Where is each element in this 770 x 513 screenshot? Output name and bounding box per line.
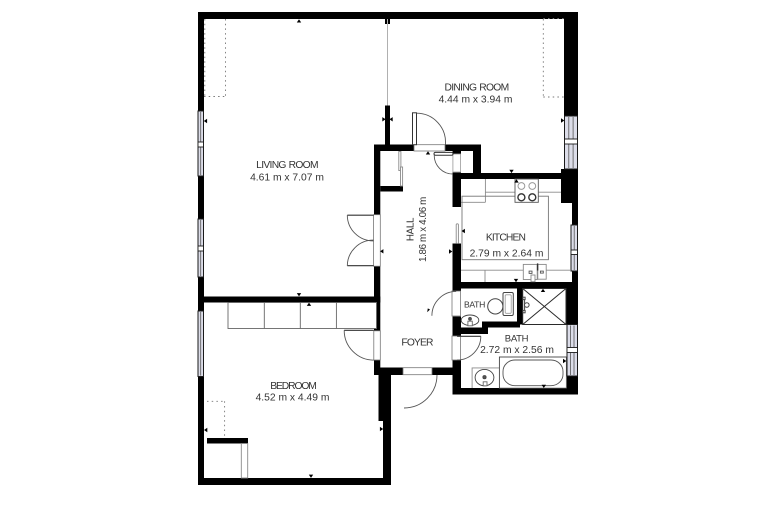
svg-text:4.52 m x 4.49 m: 4.52 m x 4.49 m	[256, 393, 330, 404]
svg-text:HALL: HALL	[405, 217, 416, 241]
svg-text:4.61 m x 7.07 m: 4.61 m x 7.07 m	[250, 172, 324, 183]
svg-text:1.86 m x 4.06 m: 1.86 m x 4.06 m	[418, 197, 429, 262]
svg-text:DINING ROOM: DINING ROOM	[445, 83, 509, 94]
svg-text:2.79 m x 2.64 m: 2.79 m x 2.64 m	[470, 249, 544, 260]
svg-text:LIVING ROOM: LIVING ROOM	[256, 160, 318, 171]
svg-text:BATH: BATH	[505, 334, 529, 345]
svg-text:BEDROOM: BEDROOM	[270, 381, 316, 392]
svg-text:BATH: BATH	[464, 299, 485, 309]
svg-text:2.72 m x 2.56 m: 2.72 m x 2.56 m	[480, 345, 554, 356]
svg-text:KITCHEN: KITCHEN	[486, 233, 526, 244]
svg-text:4.44 m x 3.94 m: 4.44 m x 3.94 m	[439, 95, 513, 106]
svg-text:FOYER: FOYER	[401, 338, 433, 349]
